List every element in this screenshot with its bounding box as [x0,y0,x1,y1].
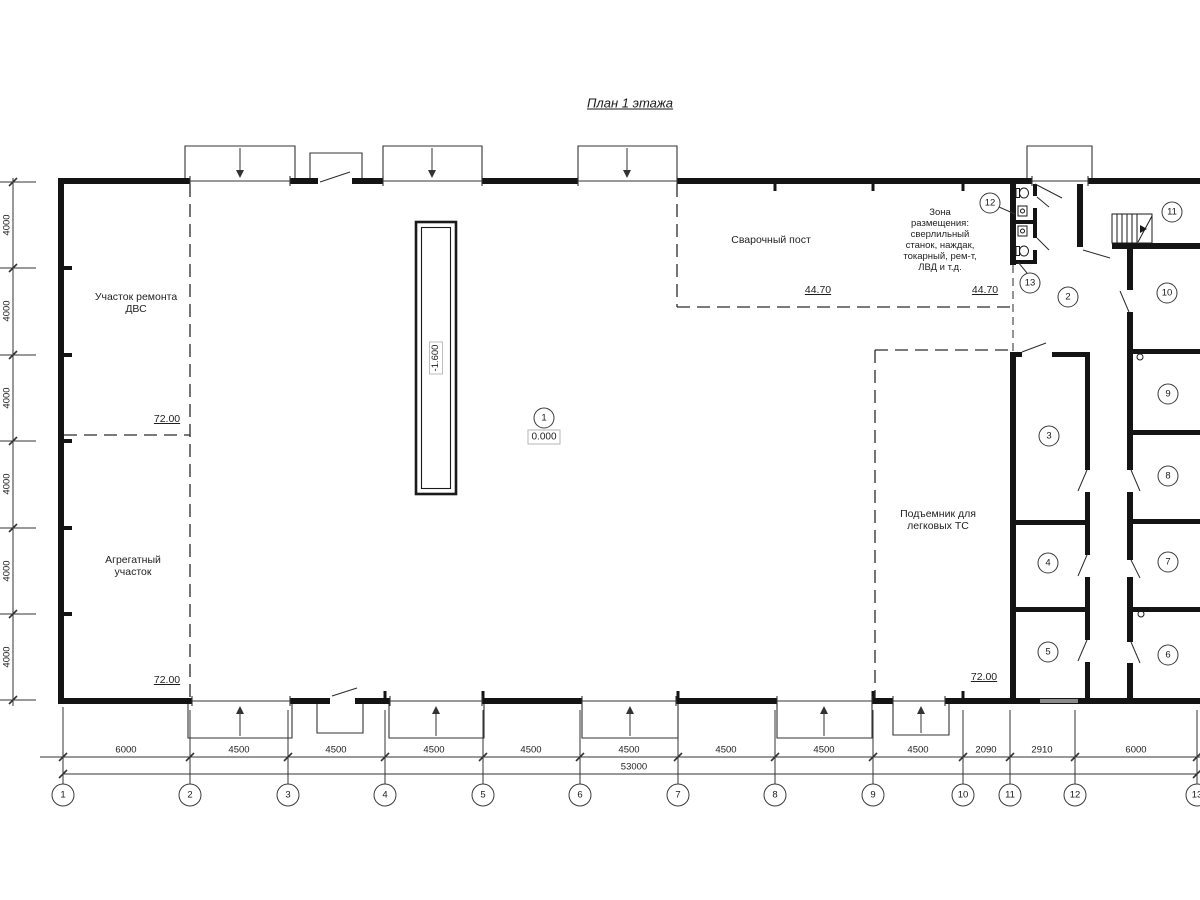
zone-line: Зона [903,207,976,218]
elevation-pit: -1.600 [429,342,443,375]
elevation-72-left-top: 72.00 [154,413,180,425]
room-bubble-3: 3 [1039,426,1060,447]
plan-linework [0,0,1200,900]
toilet-icon [1016,246,1029,256]
dim-left-2: 4000 [2,300,13,321]
zone-line: размещения: [903,218,976,229]
dim-bottom-5: 4500 [520,745,541,756]
axis-bubble-5: 5 [472,784,495,807]
sink-icon [1018,206,1027,216]
room-label-repair: Участок ремонта ДВС [95,291,177,315]
room-label-lift-line2: легковых ТС [900,520,976,532]
door-swings [320,172,1140,696]
axis-bubble-7: 7 [667,784,690,807]
dim-left-4: 4000 [2,473,13,494]
room-bubble-8: 8 [1158,466,1179,487]
dim-bottom-6: 4500 [618,745,639,756]
dim-bottom-1: 6000 [115,745,136,756]
dim-left-5: 4000 [2,560,13,581]
room-bubble-7: 7 [1158,552,1179,573]
axis-bubble-10: 10 [952,784,975,807]
room-bubble-2: 2 [1058,287,1079,308]
toilet-icon [1016,188,1029,198]
dim-left-3: 4000 [2,387,13,408]
zone-line: сверлильный [903,229,976,240]
dim-bottom-4: 4500 [423,745,444,756]
axis-bubble-4: 4 [374,784,397,807]
axis-bubble-8: 8 [764,784,787,807]
axis-bubble-9: 9 [862,784,885,807]
drawing-title: План 1 этажа [587,96,673,111]
floor-plan-sheet: План 1 этажа Участок ремонта ДВС Агрегат… [0,0,1200,900]
sink-icon [1018,226,1027,236]
elevation-4470-right: 44.70 [972,284,998,296]
stairs-icon [1112,214,1152,243]
elevation-72-right-bottom: 72.00 [971,671,997,683]
room-bubble-4: 4 [1038,553,1059,574]
room-label-aggregate-line2: участок [105,566,161,578]
dim-bottom-2: 4500 [228,745,249,756]
room-label-repair-line2: ДВС [95,303,177,315]
elevation-4470-left: 44.70 [805,284,831,296]
axis-bubble-6: 6 [569,784,592,807]
dim-bottom-7: 4500 [715,745,736,756]
dim-bottom-12: 6000 [1125,745,1146,756]
room-label-repair-line1: Участок ремонта [95,291,177,303]
dim-bottom-9: 4500 [907,745,928,756]
axis-bubble-1: 1 [52,784,75,807]
zone-line: станок, наждак, [903,240,976,251]
room-bubble-9: 9 [1158,384,1179,405]
dim-left-1: 4000 [2,214,13,235]
axis-bubble-3: 3 [277,784,300,807]
elevation-floor: 0.000 [527,430,560,445]
dimension-lines [0,178,1200,785]
room-label-aggregate-line1: Агрегатный [105,554,161,566]
elevation-72-left-bottom: 72.00 [154,674,180,686]
dim-bottom-10: 2090 [975,745,996,756]
dim-total: 53000 [621,762,647,773]
dim-bottom-8: 4500 [813,745,834,756]
room-label-zone: Зона размещения: сверлильный станок, наж… [903,207,976,273]
dim-bottom-11: 2910 [1031,745,1052,756]
room-label-aggregate: Агрегатный участок [105,554,161,578]
room-bubble-11: 11 [1162,202,1183,223]
room-label-lift: Подъемник для легковых ТС [900,508,976,532]
room-label-welding: Сварочный пост [731,234,811,246]
room-bubble-10: 10 [1157,283,1178,304]
axis-bubble-12: 12 [1064,784,1087,807]
room-bubble-12: 12 [980,193,1001,214]
axis-bubble-11: 11 [999,784,1022,807]
room-bubble-5: 5 [1038,642,1059,663]
dim-bottom-3: 4500 [325,745,346,756]
room-bubble-13: 13 [1020,273,1041,294]
axis-bubble-2: 2 [179,784,202,807]
zone-line: токарный, рем-т, [903,251,976,262]
walls [58,178,1200,704]
room-label-lift-line1: Подъемник для [900,508,976,520]
room-bubble-6: 6 [1158,645,1179,666]
zone-line: ЛВД и т.д. [903,262,976,273]
room-bubble-1: 1 [534,408,555,429]
dim-left-6: 4000 [2,646,13,667]
